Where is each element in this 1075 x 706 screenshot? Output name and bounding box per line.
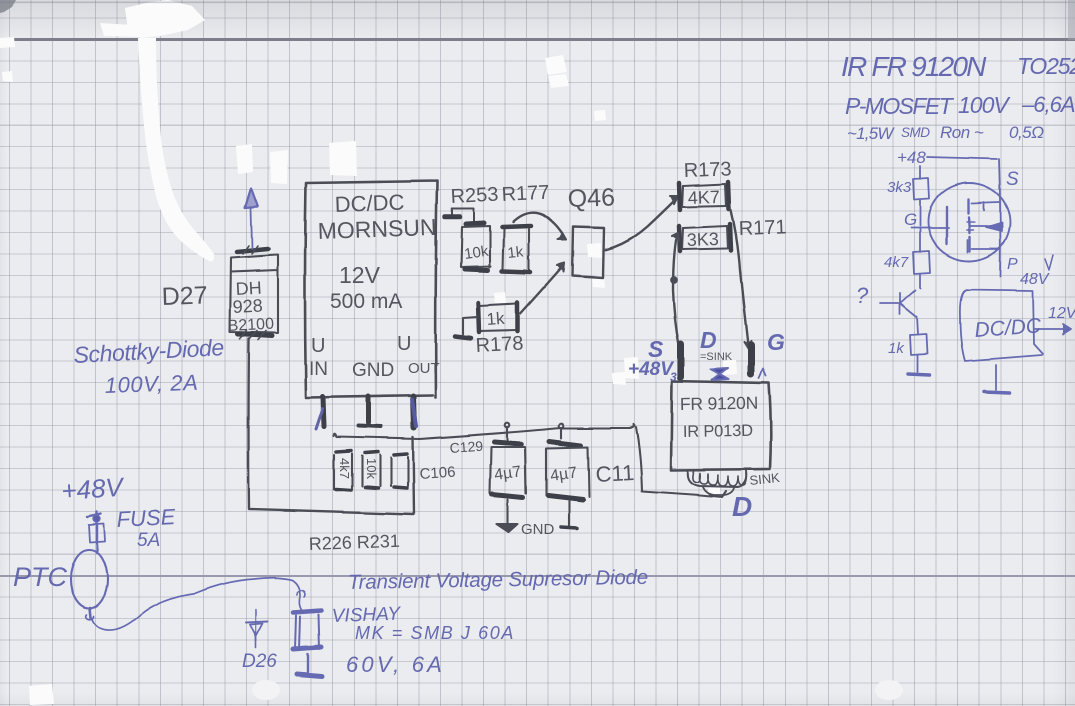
svg-text:+48: +48	[897, 148, 926, 167]
svg-text:4k7: 4k7	[337, 458, 352, 479]
svg-text:928: 928	[232, 295, 263, 317]
svg-text:R177: R177	[501, 182, 550, 206]
svg-text:0,5Ω: 0,5Ω	[1009, 123, 1044, 142]
svg-text:IR P013D: IR P013D	[683, 422, 754, 441]
svg-text:500 mA: 500 mA	[330, 290, 402, 313]
svg-text:C129: C129	[449, 438, 484, 456]
svg-text:1k: 1k	[888, 340, 905, 357]
svg-text:D: D	[700, 327, 717, 353]
svg-text:DC/DC: DC/DC	[334, 190, 405, 217]
svg-text:R171: R171	[738, 216, 787, 240]
svg-text:~1,5W: ~1,5W	[847, 124, 895, 143]
svg-text:PTC: PTC	[13, 562, 68, 592]
svg-text:C11: C11	[595, 460, 635, 487]
svg-text:1k: 1k	[507, 243, 525, 262]
svg-text:R178: R178	[475, 333, 524, 357]
svg-text:U: U	[311, 335, 325, 357]
svg-text:R253: R253	[450, 184, 499, 208]
svg-text:D26: D26	[242, 651, 277, 672]
svg-text:P: P	[1007, 256, 1018, 273]
svg-text:48V: 48V	[1020, 271, 1050, 288]
svg-text:5A: 5A	[137, 530, 160, 551]
svg-text:IR FR 9120N: IR FR 9120N	[841, 51, 987, 82]
svg-text:G: G	[767, 329, 785, 355]
svg-text:12V: 12V	[339, 262, 381, 288]
svg-text:GND: GND	[352, 360, 394, 381]
svg-text:10k: 10k	[463, 243, 490, 263]
svg-text:FR 9120N: FR 9120N	[680, 393, 759, 414]
svg-text:SMD: SMD	[901, 125, 930, 140]
svg-text:DC/DC: DC/DC	[974, 314, 1043, 342]
svg-text:R226 R231: R226 R231	[308, 531, 400, 554]
svg-text:10k: 10k	[364, 458, 379, 479]
svg-text:Ron ~: Ron ~	[940, 123, 984, 142]
svg-text:4µ7: 4µ7	[549, 464, 578, 485]
svg-text:+48V: +48V	[60, 472, 126, 506]
svg-text:IN: IN	[309, 359, 328, 380]
svg-text:?: ?	[856, 283, 869, 308]
svg-text:G: G	[904, 210, 917, 229]
svg-text:P-MOSFET: P-MOSFET	[845, 93, 955, 119]
svg-text:60V, 6A: 60V, 6A	[346, 652, 445, 677]
svg-text:C106: C106	[419, 464, 456, 483]
svg-text:S: S	[1006, 169, 1019, 190]
svg-text:GND: GND	[521, 521, 555, 538]
svg-text:SINK: SINK	[749, 470, 781, 488]
svg-text:D27: D27	[161, 281, 208, 311]
svg-text:D: D	[732, 491, 752, 522]
svg-text:3: 3	[670, 370, 677, 384]
svg-text:Schottky-Diode: Schottky-Diode	[73, 334, 225, 368]
svg-text:4K7: 4K7	[687, 187, 720, 208]
svg-text:4k7: 4k7	[884, 254, 909, 271]
svg-text:+48V: +48V	[628, 359, 674, 380]
svg-text:MK = SMB J 60A: MK = SMB J 60A	[355, 623, 515, 643]
svg-text:100V: 100V	[958, 92, 1011, 118]
svg-text:12V: 12V	[1048, 305, 1075, 322]
svg-text:OUT: OUT	[408, 360, 440, 377]
svg-text:–6,6A: –6,6A	[1021, 92, 1075, 117]
svg-text:3k3: 3k3	[887, 179, 912, 196]
svg-text:3K3: 3K3	[686, 229, 719, 250]
svg-text:MORNSUN: MORNSUN	[317, 214, 437, 244]
svg-text:1k: 1k	[486, 309, 506, 329]
svg-text:TO252: TO252	[1017, 53, 1075, 79]
svg-text:B2100: B2100	[227, 316, 274, 335]
svg-text:Q46: Q46	[567, 183, 615, 213]
svg-text:FUSE: FUSE	[116, 504, 176, 532]
svg-text:Transient Voltage Supresor Dio: Transient Voltage Supresor Diode	[348, 566, 648, 594]
svg-text:100V, 2A: 100V, 2A	[104, 370, 199, 398]
svg-text:4µ7: 4µ7	[493, 463, 522, 484]
svg-text:U: U	[397, 333, 411, 355]
svg-text:R173: R173	[683, 158, 732, 182]
